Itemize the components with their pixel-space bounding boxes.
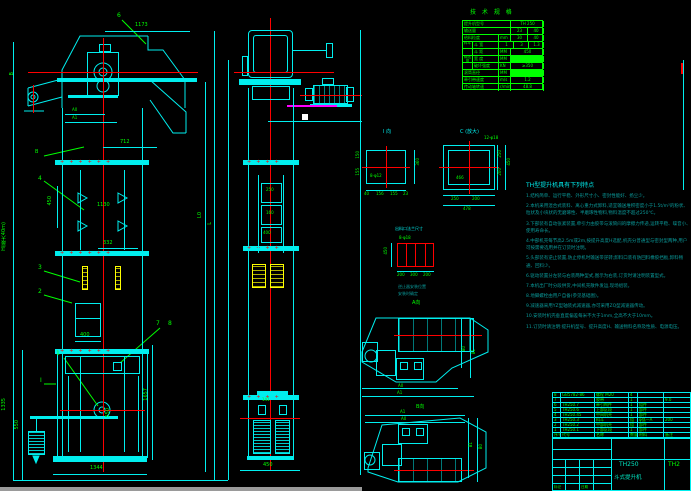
cad-sheet: 1173 6 B A0 A1 L0 L H(最大40m) 712 B +++++… — [0, 0, 691, 491]
sheet-frame — [0, 0, 691, 491]
